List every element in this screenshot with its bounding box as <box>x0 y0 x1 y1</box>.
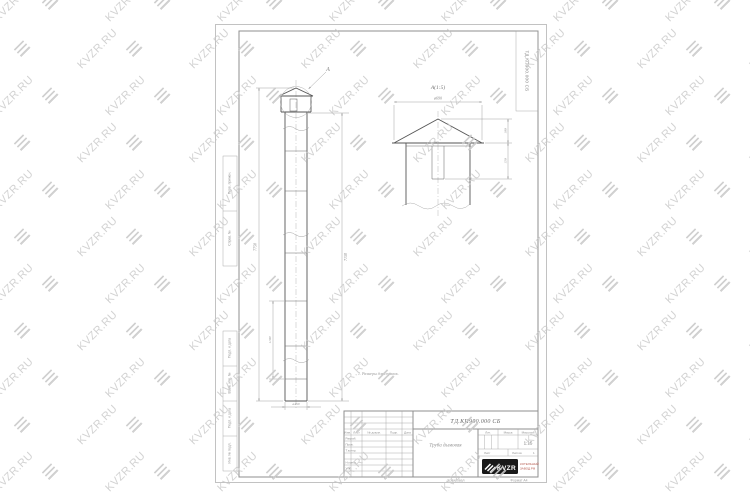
document-name: Труба дымовая <box>429 444 462 449</box>
watermark-text: KVZR.RU <box>103 262 148 307</box>
watermark-hatch-icon <box>42 181 60 199</box>
watermark-hatch-icon <box>602 275 620 293</box>
watermark-hatch-icon <box>490 0 508 11</box>
watermark-text: KVZR.RU <box>551 450 596 495</box>
watermark-text: KVZR.RU <box>635 121 680 166</box>
watermark-hatch-icon <box>714 181 732 199</box>
watermark-hatch-icon <box>14 40 32 58</box>
watermark-text: KVZR.RU <box>439 0 484 24</box>
format-label: Формат А4 <box>510 479 527 483</box>
dim-skirt-height: 150 <box>504 158 508 164</box>
title-block-headers: Изм. Лист № докум. Подп. Дата Разраб. Пр… <box>344 431 411 471</box>
col-header: Лист <box>353 431 360 435</box>
margin-label: Взам. инв. № <box>228 372 232 393</box>
watermark-text: KVZR.RU <box>663 450 708 495</box>
drawing-frame <box>239 31 538 477</box>
sheets-label: Листов <box>512 451 522 455</box>
document-designation: ТД.КП900.000 СБ <box>450 419 500 425</box>
watermark-text: KVZR.RU <box>551 0 596 24</box>
watermark-hatch-icon <box>574 228 592 246</box>
watermark-hatch-icon <box>154 275 172 293</box>
sheet-label: Лист <box>484 451 491 455</box>
title-block: Изм. Лист № докум. Подп. Дата Разраб. Пр… <box>344 411 539 477</box>
dim-roof-height: 100 <box>504 128 508 134</box>
detail-view-a: А(1:5) ø690 100 150 <box>392 84 512 217</box>
col-header: Подп. <box>390 431 398 435</box>
margin-column-bottom: Подп. и дата Взам. инв. № Подп. и дата И… <box>223 331 237 471</box>
watermark-text: KVZR.RU <box>75 121 120 166</box>
watermark-text: KVZR.RU <box>103 168 148 213</box>
row-label: Т.контр. <box>346 449 357 453</box>
watermark-hatch-icon <box>126 134 144 152</box>
lit-mass-scale: Лит. Масса Масштаб 1:15 <box>478 429 538 449</box>
watermark-hatch-icon <box>686 322 704 340</box>
watermark-hatch-icon <box>42 463 60 481</box>
watermark-hatch-icon <box>126 416 144 434</box>
logo-cell: KVZR КОТЕЛЬНЫЙ ЗАВОД.РФ <box>482 459 539 474</box>
watermark-hatch-icon <box>602 87 620 105</box>
margin-label: Инв. № подл. <box>228 442 232 463</box>
watermark-hatch-icon <box>14 134 32 152</box>
watermark-text: KVZR.RU <box>551 356 596 401</box>
watermark-text: KVZR.RU <box>0 74 36 119</box>
chimney-main-view: А 7750 1190 <box>253 67 350 410</box>
watermark-hatch-icon <box>14 322 32 340</box>
watermark-hatch-icon <box>602 0 620 11</box>
watermark-hatch-icon <box>714 275 732 293</box>
kvzr-logo-text: KVZR <box>497 465 516 472</box>
margin-label: Подп. и дата <box>228 338 232 358</box>
watermark-text: KVZR.RU <box>103 450 148 495</box>
watermark-hatch-icon <box>378 0 396 11</box>
watermark-text: KVZR.RU <box>0 0 36 24</box>
watermark-text: KVZR.RU <box>75 309 120 354</box>
dim-cap-diameter: ø690 <box>433 96 442 101</box>
watermark-text: KVZR.RU <box>663 356 708 401</box>
watermark-text: KVZR.RU <box>75 27 120 72</box>
corner-stamp: ТД.КП900.000 СБ <box>516 31 538 111</box>
watermark-hatch-icon <box>14 228 32 246</box>
dim-base-diameter: ø450 <box>292 402 300 406</box>
scale-value: 1:15 <box>524 441 533 446</box>
watermark-text: KVZR.RU <box>75 403 120 448</box>
company-name-line2: ЗАВОД.РФ <box>520 467 536 471</box>
watermark-hatch-icon <box>686 228 704 246</box>
watermark-hatch-icon <box>42 275 60 293</box>
page: { "watermark": { "text": "KVZR.RU" }, "c… <box>0 0 750 500</box>
watermark-text: KVZR.RU <box>663 0 708 24</box>
title-block-grid <box>344 411 413 477</box>
watermark-hatch-icon <box>574 134 592 152</box>
watermark-hatch-icon <box>154 369 172 387</box>
watermark-text: KVZR.RU <box>551 74 596 119</box>
watermark-text: KVZR.RU <box>0 356 36 401</box>
watermark-text: KVZR.RU <box>103 74 148 119</box>
watermark-hatch-icon <box>686 134 704 152</box>
watermark-hatch-icon <box>686 40 704 58</box>
row-label: Пров. <box>346 443 354 447</box>
reference-note: 1. Размеры для справок. <box>358 371 399 376</box>
watermark-hatch-icon <box>266 0 284 11</box>
watermark-hatch-icon <box>42 87 60 105</box>
watermark-text: KVZR.RU <box>663 74 708 119</box>
watermark-hatch-icon <box>574 416 592 434</box>
watermark-hatch-icon <box>154 0 172 11</box>
row-label: Н.контр. <box>346 461 358 465</box>
watermark-hatch-icon <box>574 322 592 340</box>
watermark-hatch-icon <box>126 40 144 58</box>
copied-label: Копировал <box>448 479 465 483</box>
drawing-canvas: ТД.КП900.000 СБ Перв. примен. Справ. № П… <box>216 25 546 482</box>
watermark-hatch-icon <box>602 463 620 481</box>
watermark-hatch-icon <box>42 369 60 387</box>
detail-view-title: А(1:5) <box>430 84 446 91</box>
watermark-text: KVZR.RU <box>635 27 680 72</box>
watermark-text: KVZR.RU <box>663 168 708 213</box>
watermark-text: KVZR.RU <box>551 262 596 307</box>
watermark-text: KVZR.RU <box>103 0 148 24</box>
drawing-sheet: ТД.КП900.000 СБ Перв. примен. Справ. № П… <box>215 24 547 483</box>
watermark-text: KVZR.RU <box>635 403 680 448</box>
watermark-text: KVZR.RU <box>0 262 36 307</box>
watermark-hatch-icon <box>714 0 732 11</box>
margin-label: Перв. примен. <box>228 172 232 195</box>
watermark-hatch-icon <box>126 228 144 246</box>
watermark-hatch-icon <box>574 40 592 58</box>
watermark-text: KVZR.RU <box>635 309 680 354</box>
dim-body-height: 7150 <box>343 253 348 261</box>
watermark-text: KVZR.RU <box>215 0 260 24</box>
watermark-hatch-icon <box>126 322 144 340</box>
watermark-hatch-icon <box>154 87 172 105</box>
watermark-hatch-icon <box>602 369 620 387</box>
col-header: Изм. <box>344 431 351 435</box>
watermark-hatch-icon <box>154 463 172 481</box>
corner-stamp-text: ТД.КП900.000 СБ <box>525 51 530 92</box>
col-header: Дата <box>404 431 411 435</box>
main-view-dimensions: 7750 1190 7150 ø450 <box>253 88 350 410</box>
company-name-line1: КОТЕЛЬНЫЙ <box>520 462 539 466</box>
break-line <box>402 203 470 209</box>
watermark-text: KVZR.RU <box>75 215 120 260</box>
margin-label: Справ. № <box>228 230 232 246</box>
row-label: Утв. <box>346 467 352 471</box>
detail-view-dimensions: 100 150 <box>441 119 512 179</box>
lit-label: Лит. <box>485 431 491 435</box>
dim-section-height: 1190 <box>268 336 272 343</box>
watermark-text: KVZR.RU <box>0 450 36 495</box>
sheets-value: 1 <box>533 451 535 455</box>
watermark-text: KVZR.RU <box>0 168 36 213</box>
watermark-text: KVZR.RU <box>551 168 596 213</box>
watermark-hatch-icon <box>154 181 172 199</box>
watermark-hatch-icon <box>714 369 732 387</box>
dim-overall-height: 7750 <box>253 243 258 251</box>
mass-label: Масса <box>504 431 513 435</box>
watermark-text: KVZR.RU <box>103 356 148 401</box>
watermark-hatch-icon <box>714 463 732 481</box>
watermark-hatch-icon <box>686 416 704 434</box>
detail-callout-label: А <box>325 67 330 73</box>
margin-column-top: Перв. примен. Справ. № <box>223 156 237 266</box>
watermark-text: KVZR.RU <box>635 215 680 260</box>
watermark-text: KVZR.RU <box>327 0 372 24</box>
row-label: Разраб. <box>346 437 357 441</box>
watermark-text: KVZR.RU <box>663 262 708 307</box>
watermark-hatch-icon <box>714 87 732 105</box>
watermark-hatch-icon <box>602 181 620 199</box>
margin-label: Подп. и дата <box>228 408 232 428</box>
sheet-count-row: Лист Листов 1 <box>478 449 538 456</box>
watermark-hatch-icon <box>14 416 32 434</box>
scale-label: Масштаб <box>522 431 535 435</box>
col-header: № докум. <box>367 431 380 435</box>
watermark-hatch-icon <box>42 0 60 11</box>
